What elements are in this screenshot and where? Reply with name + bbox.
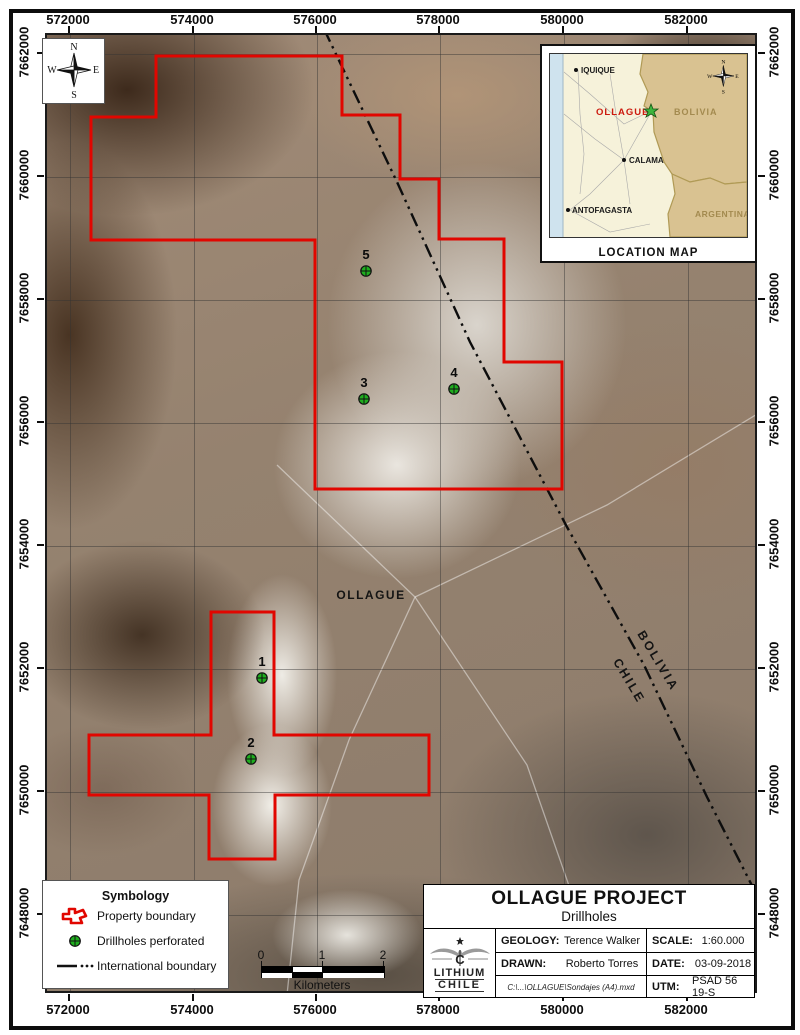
coord-label-right-6: 7650000 — [767, 765, 782, 816]
tick-right — [758, 175, 765, 177]
document-path: C:\...\OLLAGUE\Sondajes (A4).mxd — [496, 975, 646, 998]
scale-bar-graphic — [261, 966, 385, 978]
city-dot-iquique — [574, 68, 578, 72]
coord-label-left-2: 7658000 — [17, 273, 32, 324]
tick-top — [315, 26, 317, 33]
coord-label-right-2: 7658000 — [767, 273, 782, 324]
drillhole-label-5: 5 — [354, 247, 378, 262]
drillhole-label-4: 4 — [442, 365, 466, 380]
lithium-chile-logo: C LITHIUM CHILE — [424, 929, 496, 998]
argentina-region — [668, 174, 747, 237]
tick-top — [686, 26, 688, 33]
scale-tick-2: 2 — [380, 948, 387, 962]
tick-top — [192, 26, 194, 33]
date-key: DATE: — [646, 952, 692, 975]
tick-top — [68, 26, 70, 33]
international-boundary-icon — [53, 961, 97, 971]
project-title: OLLAGUE PROJECT — [424, 885, 754, 910]
compass-s-label: S — [71, 90, 77, 101]
coord-label-left-7: 7648000 — [17, 888, 32, 939]
tick-left — [37, 421, 44, 423]
map-sheet: OLLAGUE BOLIVIA CHILE 12345 572000572000… — [0, 0, 800, 1035]
city-dot-antofagasta — [566, 208, 570, 212]
tick-top — [562, 26, 564, 33]
utm-key: UTM: — [646, 975, 692, 998]
scale-bar-unit: Kilometers — [261, 978, 383, 992]
coord-label-top-3: 578000 — [416, 12, 459, 27]
tick-right — [758, 298, 765, 300]
tick-top — [438, 26, 440, 33]
drillhole-marker-1 — [255, 671, 269, 685]
logo-text-lithium: LITHIUM — [434, 968, 486, 979]
coord-label-bottom-0: 572000 — [46, 1002, 89, 1017]
title-block: OLLAGUE PROJECT Drillholes C LITHIUM CHI… — [423, 884, 755, 998]
drawn-value: Roberto Torres — [558, 952, 646, 975]
location-map: IQUIQUE OLLAGUE BOLIVIA CALAMA ANTOFAGAS… — [549, 53, 748, 238]
legend-item-property-boundary: Property boundary — [43, 903, 228, 928]
coord-label-right-0: 7662000 — [767, 27, 782, 78]
tick-right — [758, 667, 765, 669]
coord-label-bottom-2: 576000 — [293, 1002, 336, 1017]
tick-bottom — [192, 994, 194, 1001]
scale-tick-0: 0 — [258, 948, 265, 962]
drillhole-icon — [53, 933, 97, 949]
property-boundary-north — [91, 56, 562, 489]
coord-label-top-1: 574000 — [170, 12, 213, 27]
drillhole-marker-4 — [447, 382, 461, 396]
tick-left — [37, 790, 44, 792]
geology-key: GEOLOGY: — [496, 929, 558, 952]
compass-rose: N E S W — [42, 38, 105, 104]
tick-bottom — [68, 994, 70, 1001]
coord-label-right-5: 7652000 — [767, 642, 782, 693]
coord-label-right-7: 7648000 — [767, 888, 782, 939]
coord-label-right-1: 7660000 — [767, 150, 782, 201]
tick-bottom — [315, 994, 317, 1001]
legend-item-drillholes: Drillholes perforated — [43, 928, 228, 953]
coord-label-right-4: 7654000 — [767, 519, 782, 570]
scale-bar: 0 1 2 Kilometers — [254, 948, 394, 994]
title-block-fields: GEOLOGY: Terence Walker SCALE: 1:60.000 … — [496, 929, 754, 998]
town-label-ollague: OLLAGUE — [336, 588, 405, 602]
city-label-antofagasta: ANTOFAGASTA — [572, 206, 632, 215]
coord-label-bottom-5: 582000 — [664, 1002, 707, 1017]
coord-label-left-4: 7654000 — [17, 519, 32, 570]
scale-value: 1:60.000 — [692, 929, 754, 952]
drillhole-label-1: 1 — [250, 654, 274, 669]
geology-value: Terence Walker — [558, 929, 646, 952]
drillhole-marker-2 — [244, 752, 258, 766]
legend-box: Symbology Property boundary Drillholes p… — [42, 880, 229, 989]
tick-right — [758, 790, 765, 792]
compass-w-label: W — [47, 65, 57, 76]
city-label-iquique: IQUIQUE — [581, 66, 615, 75]
coord-label-right-3: 7656000 — [767, 396, 782, 447]
coord-label-left-6: 7650000 — [17, 765, 32, 816]
compass-e-label: E — [92, 65, 98, 76]
tick-right — [758, 52, 765, 54]
tick-left — [37, 298, 44, 300]
svg-text:E: E — [735, 74, 739, 80]
logo-text-chile: CHILE — [435, 979, 484, 992]
utm-value: PSAD 56 19-S — [692, 975, 754, 998]
drillhole-marker-5 — [359, 264, 373, 278]
svg-text:N: N — [721, 60, 725, 66]
legend-title: Symbology — [43, 889, 228, 903]
svg-text:W: W — [707, 74, 713, 80]
coord-label-left-0: 7662000 — [17, 27, 32, 78]
drawn-key: DRAWN: — [496, 952, 558, 975]
coord-label-top-4: 580000 — [540, 12, 583, 27]
location-map-inset: IQUIQUE OLLAGUE BOLIVIA CALAMA ANTOFAGAS… — [540, 44, 757, 263]
coord-label-top-0: 572000 — [46, 12, 89, 27]
tick-right — [758, 913, 765, 915]
compass-rose-icon: N E S W — [46, 41, 102, 101]
drillhole-label-2: 2 — [239, 735, 263, 750]
coord-label-left-3: 7656000 — [17, 396, 32, 447]
city-label-ollague: OLLAGUE — [596, 107, 649, 118]
legend-label: Drillholes perforated — [97, 934, 204, 948]
drillhole-marker-3 — [357, 392, 371, 406]
coord-label-bottom-1: 574000 — [170, 1002, 213, 1017]
coord-label-bottom-4: 580000 — [540, 1002, 583, 1017]
coord-label-bottom-3: 578000 — [416, 1002, 459, 1017]
legend-label: Property boundary — [97, 909, 196, 923]
title-block-header: OLLAGUE PROJECT Drillholes — [424, 885, 754, 929]
svg-text:S: S — [722, 89, 725, 95]
city-label-calama: CALAMA — [629, 156, 664, 165]
coord-label-top-2: 576000 — [293, 12, 336, 27]
tick-left — [37, 667, 44, 669]
scale-key: SCALE: — [646, 929, 692, 952]
tick-left — [37, 544, 44, 546]
coord-label-top-5: 582000 — [664, 12, 707, 27]
project-subtitle: Drillholes — [424, 909, 754, 924]
coord-label-left-5: 7652000 — [17, 642, 32, 693]
tick-left — [37, 175, 44, 177]
inset-caption: LOCATION MAP — [542, 247, 755, 259]
coord-label-left-1: 7660000 — [17, 150, 32, 201]
compass-n-label: N — [70, 42, 77, 53]
property-boundary-icon — [53, 904, 97, 928]
country-label-bolivia-inset: BOLIVIA — [674, 107, 718, 117]
legend-label: International boundary — [97, 959, 216, 973]
ocean — [550, 54, 563, 237]
condor-logo-icon: C — [427, 936, 493, 968]
tick-right — [758, 421, 765, 423]
city-dot-calama — [622, 158, 626, 162]
drillhole-label-3: 3 — [352, 375, 376, 390]
country-label-argentina-inset: ARGENTINA — [695, 209, 747, 219]
tick-right — [758, 544, 765, 546]
date-value: 03-09-2018 — [692, 952, 754, 975]
scale-tick-1: 1 — [319, 948, 326, 962]
legend-item-international-boundary: International boundary — [43, 953, 228, 978]
